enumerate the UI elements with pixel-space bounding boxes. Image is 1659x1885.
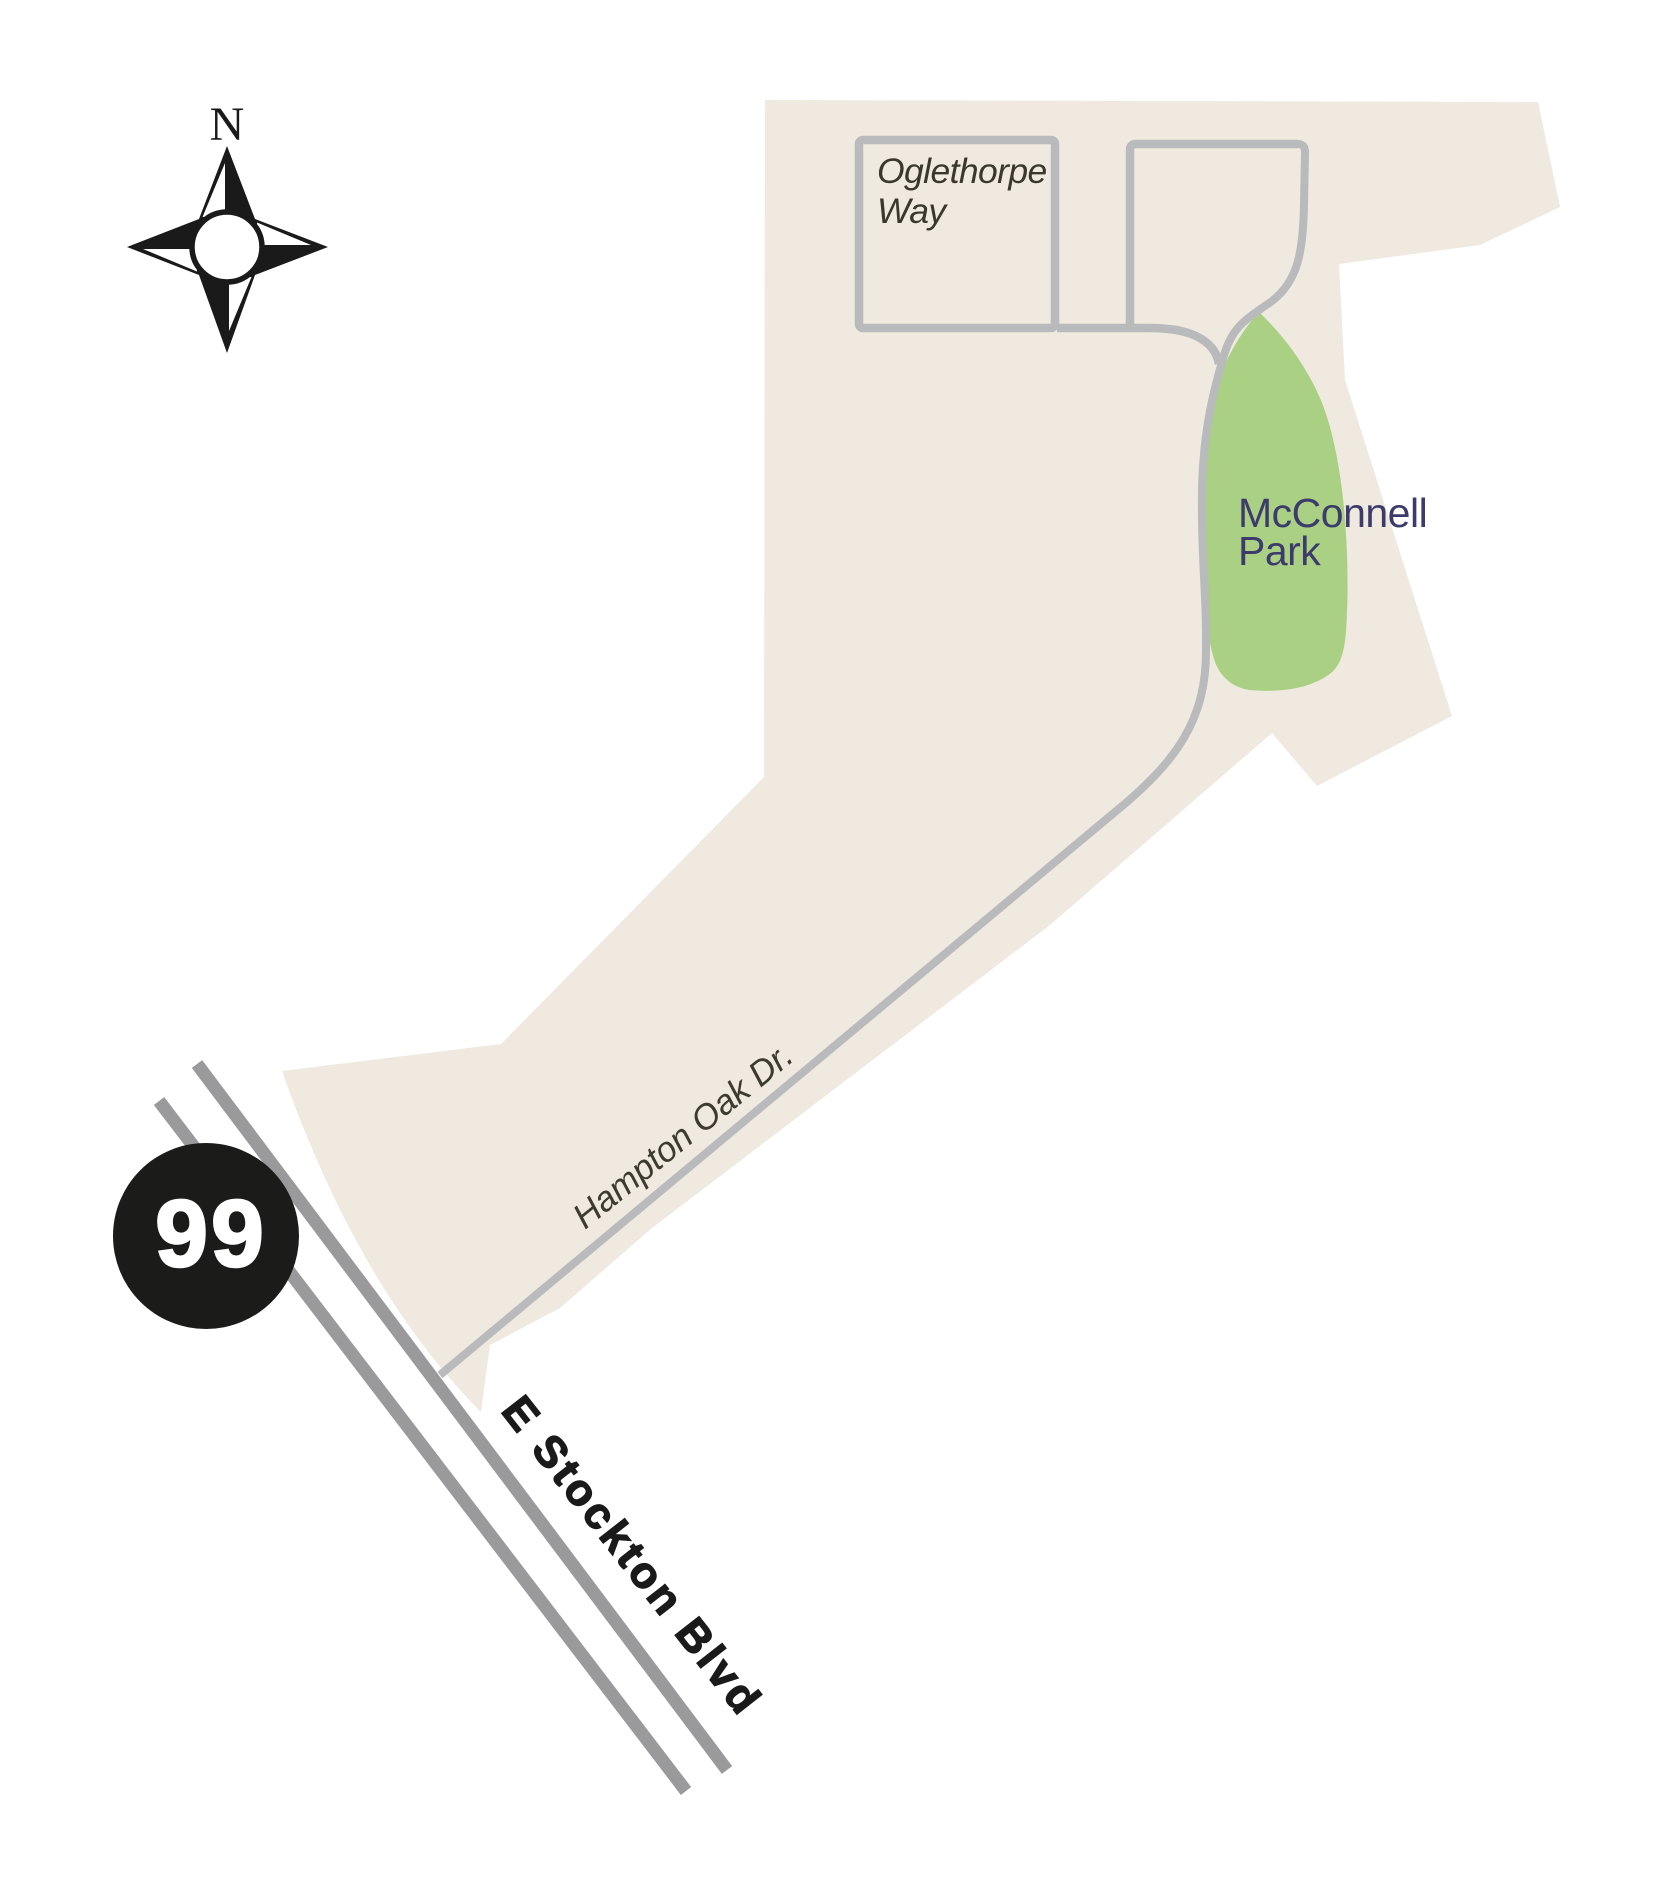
svg-text:99: 99 — [155, 1181, 267, 1287]
svg-text:Oglethorpe: Oglethorpe — [877, 151, 1047, 191]
svg-text:Park: Park — [1238, 528, 1321, 574]
svg-text:Way: Way — [877, 191, 948, 231]
svg-text:N: N — [210, 98, 245, 151]
